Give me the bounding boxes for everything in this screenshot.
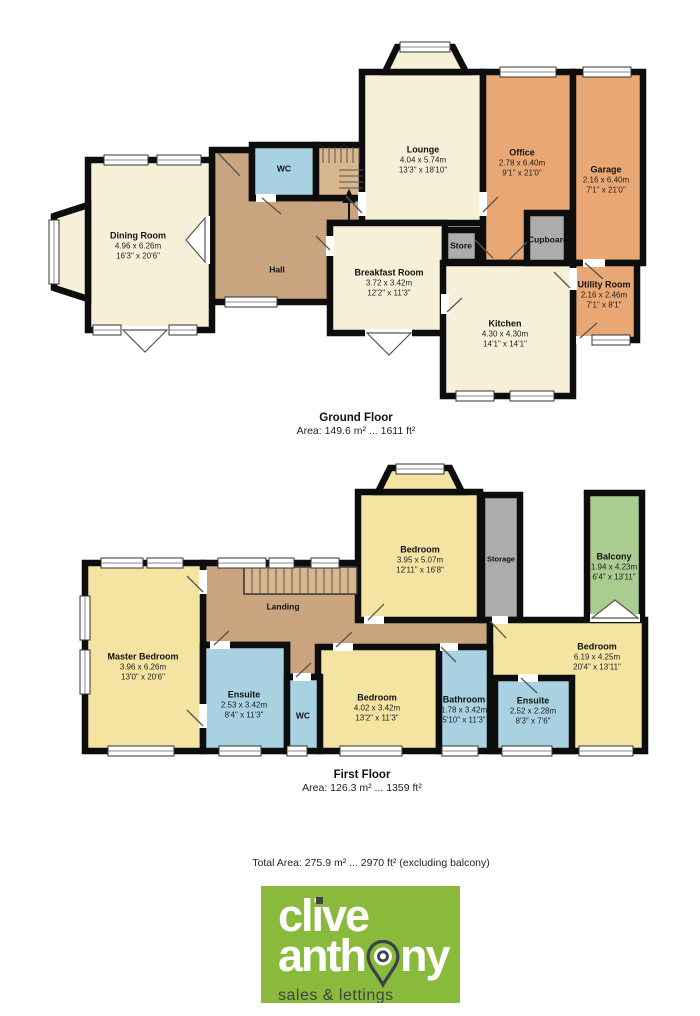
ground-floor-caption: Ground Floor Area: 149.6 m² ... 1611 ft² (297, 412, 416, 437)
ground-floor-title: Ground Floor (297, 412, 416, 424)
first-floor-plan (85, 468, 645, 751)
kitchen-shape (443, 263, 573, 396)
storage-shape (482, 495, 520, 620)
location-pin-icon (365, 938, 401, 990)
bedroom-middle-shape (318, 647, 439, 751)
first-floor-caption: First Floor Area: 126.3 m² ... 1359 ft² (302, 769, 422, 794)
floorplan-page: Dining Room 4.96 x 6.26m 16'3" x 20'6" H… (0, 0, 700, 1016)
total-area-text: Total Area: 275.9 m² ... 2970 ft² (exclu… (252, 857, 490, 869)
bathroom-shape (439, 647, 490, 751)
store-shape (445, 230, 478, 262)
first-floor-area: Area: 126.3 m² ... 1359 ft² (302, 782, 422, 794)
agency-logo: clive anth ny sales & lettings (261, 886, 460, 1003)
lounge-shape (362, 72, 483, 223)
ensuite-1-shape (203, 645, 287, 751)
master-bedroom-shape (85, 563, 203, 751)
ground-floor-area: Area: 149.6 m² ... 1611 ft² (297, 425, 416, 437)
cupboard-shape (527, 213, 567, 263)
wc-shape (252, 145, 316, 198)
logo-i-dot (316, 897, 323, 904)
bedroom-front-shape (358, 492, 480, 620)
balcony-shape (587, 493, 642, 618)
wc-first-shape (287, 677, 320, 751)
logo-word-anthony: anth ny (278, 936, 449, 990)
utility-room-shape (573, 263, 637, 340)
garage-shape (573, 72, 643, 263)
breakfast-room-shape (330, 223, 445, 333)
first-floor-title: First Floor (302, 769, 422, 781)
